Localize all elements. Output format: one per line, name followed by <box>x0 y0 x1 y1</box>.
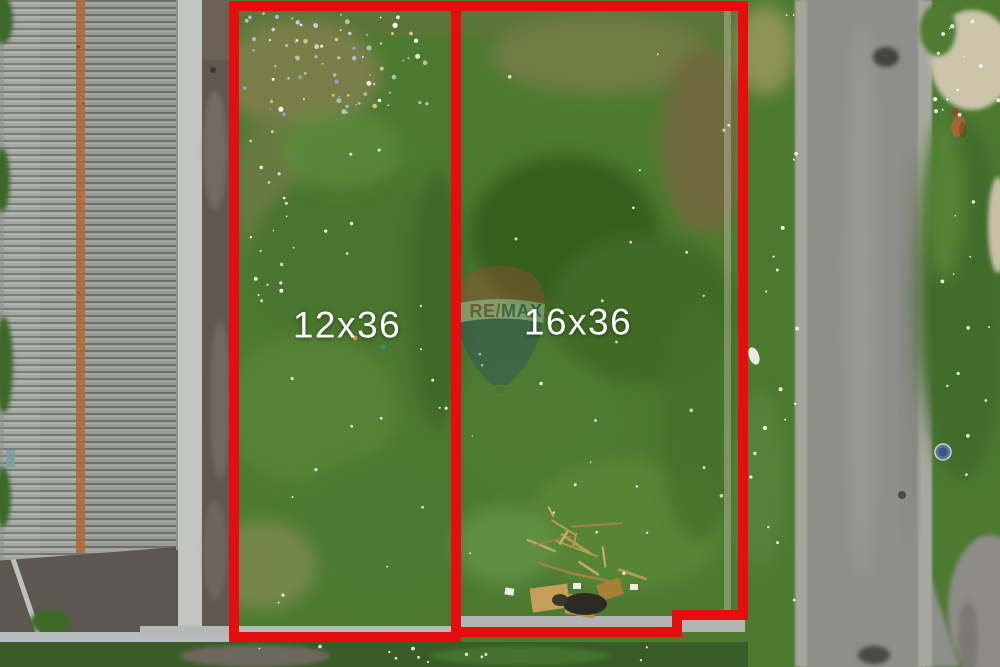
alley-dirt-path <box>202 0 232 635</box>
bottom-grass-strip <box>0 642 748 667</box>
plot-label-right: 16x36 <box>524 302 632 343</box>
brand-text-re: RE/ <box>469 301 501 321</box>
blue-barrel <box>935 444 951 460</box>
balloon-basket <box>495 387 505 393</box>
grass-tuft <box>30 610 70 634</box>
roof-ridge <box>76 0 85 553</box>
building-roof <box>0 0 179 561</box>
aerial-photo: RE/ MAX 12x36 16x36 <box>0 0 1000 667</box>
plot-label-left: 12x36 <box>293 305 401 346</box>
skylight <box>6 450 15 467</box>
alley-walkway <box>178 0 202 635</box>
